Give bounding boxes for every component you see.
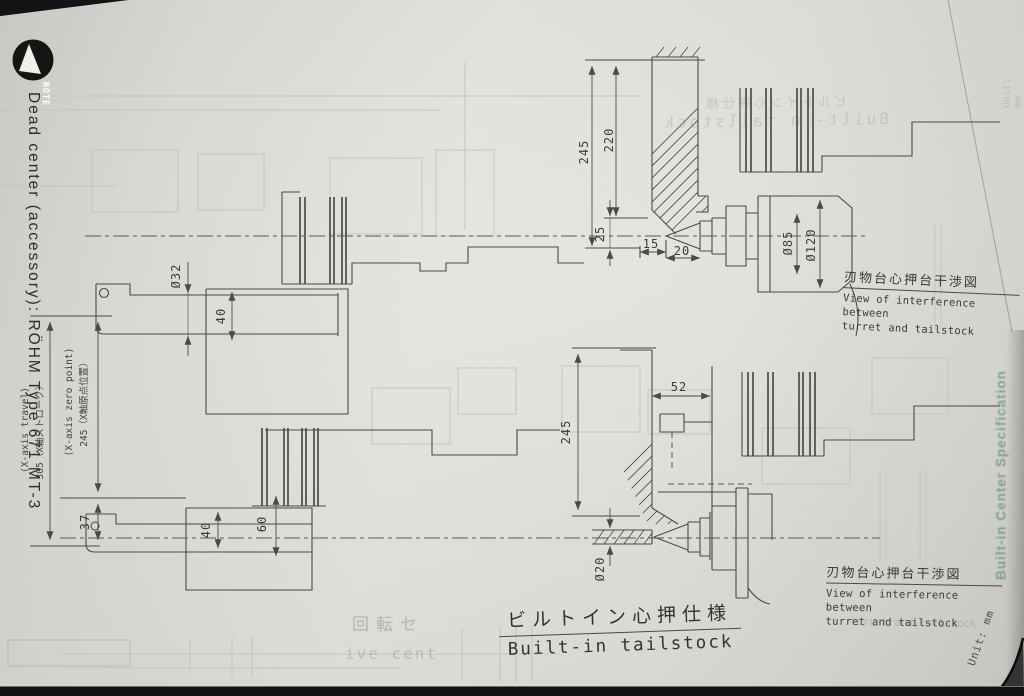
dead-center-note-icon — [12, 38, 56, 84]
lower-caption-jp: 刃物台心押台干渉図 — [826, 561, 1002, 586]
note-badge: NOTE — [12, 38, 56, 84]
dim-upper-245: 245 — [577, 140, 591, 165]
dim-lower-60: 60 — [255, 516, 269, 532]
upper-view-caption: 刃物台心押台干渉図 View of interference between t… — [842, 266, 1021, 341]
dim-upper-dia120: Ø120 — [804, 229, 818, 262]
dim-lower-245: 245 — [559, 420, 573, 445]
x-axis-zero-jp: 245（X軸原点位置） — [77, 348, 92, 457]
dim-upper-dia32: Ø32 — [169, 264, 183, 289]
dim-upper-15: 15 — [643, 237, 659, 251]
dim-lower-dia20: Ø20 — [593, 557, 607, 582]
dim-axis-37: 37 — [78, 514, 92, 530]
slot-lines — [262, 88, 815, 506]
hatching-lower-wall — [536, 330, 874, 560]
centerlines — [60, 236, 880, 538]
lower-caption-en2: turret and tailstock — [825, 615, 1001, 632]
x-axis-travel-en: (X-axis travel) — [18, 381, 33, 480]
side-label: Dead center (accessory): RÖHM Type 671 M… — [24, 92, 42, 592]
dim-upper-220: 220 — [602, 128, 616, 153]
dimension-lines — [50, 66, 820, 566]
dim-upper-40: 40 — [214, 308, 228, 324]
x-axis-zero-en: (X-axis zero point) — [62, 348, 77, 457]
dim-lower-40: 40 — [199, 522, 213, 538]
lower-caption-en1: View of interference between — [826, 586, 1002, 617]
x-axis-zero-annotation: (X-axis zero point) 245（X軸原点位置） — [62, 348, 92, 457]
lower-view-caption: 刃物台心押台干渉図 View of interference between t… — [825, 561, 1002, 632]
dim-upper-25: 25 — [593, 226, 607, 242]
photo-of-manual-page: NOTE Dead center (accessory): RÖHM Type … — [0, 0, 1024, 696]
dim-upper-dia85: Ø85 — [781, 231, 795, 256]
photo-background-bottom — [0, 686, 1024, 696]
dim-upper-20: 20 — [674, 244, 690, 258]
x-axis-travel-annotation: (X-axis travel) 305（X軸ストローク） — [18, 381, 48, 480]
x-axis-travel-jp: 305（X軸ストローク） — [33, 381, 48, 480]
dim-lower-52: 52 — [671, 380, 687, 394]
ghost-section-tab: Built-in Center Specification — [994, 370, 1009, 580]
